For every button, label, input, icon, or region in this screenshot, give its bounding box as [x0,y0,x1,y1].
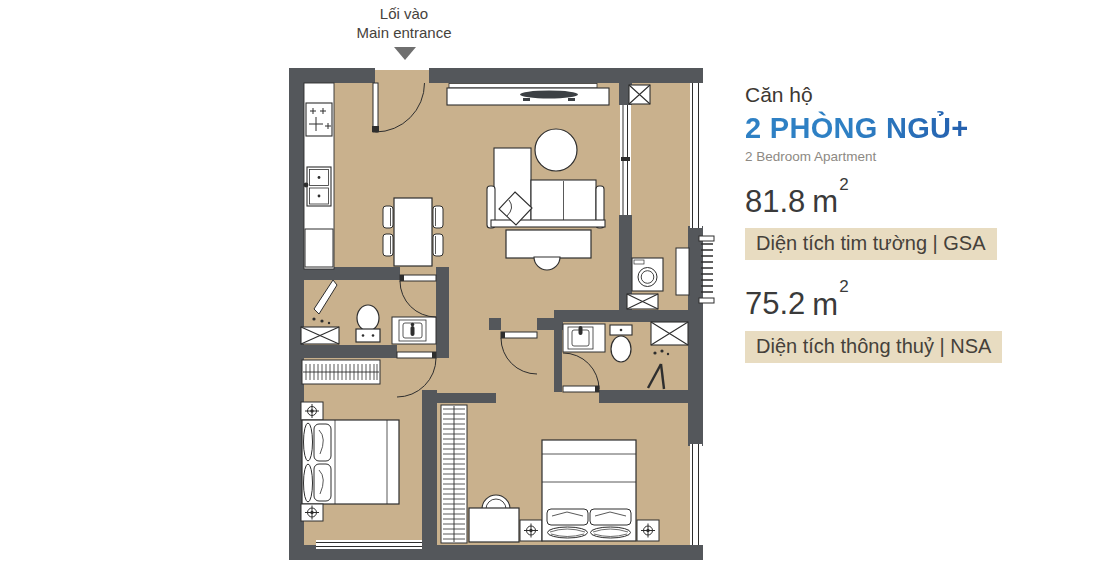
pillow-icon [590,509,631,525]
entrance-label: Lối vào Main entrance [329,4,479,42]
unit-category-label: Căn hộ [745,82,1090,108]
entrance-label-en: Main entrance [329,23,479,42]
kitchen-cabinet-icon [305,229,333,267]
kitchen-sink-icon [304,167,331,206]
dining-chair-icon [433,206,443,228]
wardrobe-icon [441,405,467,543]
coffee-table-icon [506,230,591,258]
bedroom2-window [690,444,702,545]
entrance-arrow-icon [394,47,416,60]
gsa-area-number: 81.8 [745,184,805,219]
pillow-icon [547,509,588,525]
nightstand-icon [637,520,659,541]
dining-chair-icon [383,234,393,256]
kitchen [304,83,334,269]
double-bed-icon [302,420,399,504]
pillow-icon [314,424,331,461]
dining-chair-icon [383,206,393,228]
gsa-area-unit: m2 [812,184,848,219]
nsa-area-value: 75.2m2 [745,280,1090,322]
stove-icon [306,103,332,136]
nightstand-icon [301,402,323,420]
toilet-icon [610,325,632,362]
floorplan-page: Lối vào Main entrance [0,0,1100,566]
balcony-railing [690,83,702,228]
nsa-caption-badge: Diện tích thông thuỷ | NSA [745,331,1002,363]
dining-table-icon [394,198,432,266]
toilet-icon [356,305,380,342]
balcony-shelf-icon [676,248,689,295]
vanity-sink-icon [563,324,605,352]
wardrobe-icon [302,360,380,384]
gsa-area-value: 81.8m2 [745,178,1090,220]
double-bed-icon [542,440,636,541]
desk-icon [469,508,519,542]
dining-chair-icon [433,234,443,256]
nightstand-icon [520,520,542,541]
tv-icon [520,91,578,99]
vanity-sink-icon [392,317,436,344]
nightstand-icon [301,504,323,521]
balcony-sliding-door [620,105,631,215]
tv-wall [447,84,609,106]
unit-info-panel: Căn hộ 2 PHÒNG NGỦ+ 2 Bedroom Apartment … [745,82,1090,363]
floorplan-drawing [289,68,715,562]
entrance-label-vi: Lối vào [329,4,479,23]
washing-machine-icon [632,258,663,291]
unit-title: 2 PHÒNG NGỦ+ [745,111,1090,145]
nsa-area-number: 75.2 [745,287,805,322]
round-side-table-icon [535,129,577,171]
pillow-icon [314,464,331,501]
nsa-area-unit: m2 [812,287,848,322]
bedroom1-window [316,540,422,549]
unit-subtitle: 2 Bedroom Apartment [745,148,1090,166]
gsa-caption-badge: Diện tích tim tường | GSA [745,228,997,260]
